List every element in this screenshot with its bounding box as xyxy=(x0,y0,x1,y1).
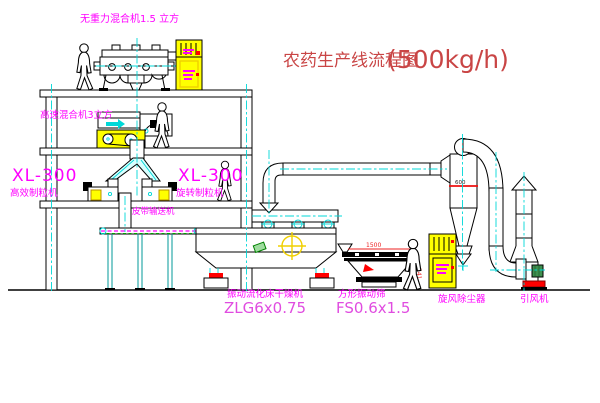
fluid-bed-dryer-drawing xyxy=(196,210,338,288)
label-belt-conveyor: 皮带输送机 xyxy=(132,206,175,217)
sieve-length-dim: 1500 xyxy=(366,242,381,249)
cyclone-drawing: 600 xyxy=(449,139,516,278)
page-title-capacity: (500kg/h) xyxy=(387,45,509,74)
fan-motor xyxy=(532,265,543,277)
label-sieve-model: FS0.6x1.5 xyxy=(336,299,410,317)
label-granulator-right-name: 旋转制粒机 xyxy=(176,187,224,199)
granulator-left-drawing xyxy=(83,179,118,201)
label-cyclone: 旋风除尘器 xyxy=(438,293,486,305)
fan-drawing xyxy=(516,259,547,290)
label-dryer-model: ZLG6x0.75 xyxy=(224,299,306,317)
label-gravity-free-mixer: 无重力混合机1.5 立方 xyxy=(80,12,179,25)
label-granulator-left-model: XL-300 xyxy=(12,166,77,186)
control-cabinet-top xyxy=(176,40,202,90)
person-figure-top xyxy=(77,44,93,90)
granulator-right-drawing xyxy=(142,179,177,201)
label-granulator-left-name: 高效制粒机 xyxy=(10,187,58,199)
person-figure-second-floor xyxy=(154,103,170,148)
control-cabinet-right xyxy=(429,234,456,288)
flow-diagram-canvas: 600 1500 541 xyxy=(0,0,600,403)
pesticide-line-drawing: 600 1500 541 xyxy=(0,0,600,403)
cabinet-text-block xyxy=(183,49,194,51)
label-fan: 引风机 xyxy=(520,293,549,305)
person-figure-ground xyxy=(403,239,420,290)
exhaust-duct xyxy=(260,155,450,213)
label-granulator-right-model: XL-300 xyxy=(178,166,243,186)
label-high-speed-mixer: 高速混合机3立方 xyxy=(40,109,113,121)
cyclone-diameter-dim: 600 xyxy=(455,180,466,186)
